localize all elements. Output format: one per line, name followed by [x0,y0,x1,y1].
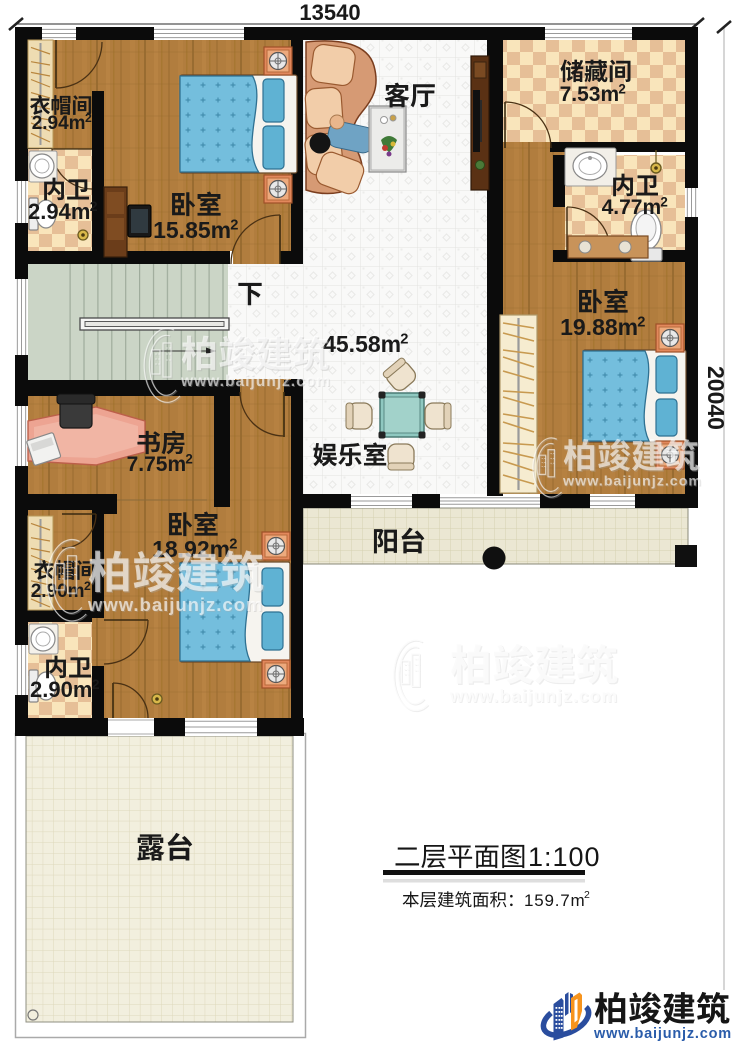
svg-text:www.baijunjz.com: www.baijunjz.com [562,474,702,490]
svg-text:2: 2 [229,537,237,553]
svg-text:2: 2 [660,194,667,209]
svg-text:4.77m: 4.77m [602,196,662,219]
svg-text:7.53m: 7.53m [560,83,620,106]
svg-text:2: 2 [584,889,590,901]
svg-text:2.94m: 2.94m [32,113,86,134]
svg-text:2: 2 [230,218,238,234]
svg-text:15.85m: 15.85m [153,217,231,243]
svg-text:www.baijunjz.com: www.baijunjz.com [87,594,263,615]
svg-text:7.75m: 7.75m [127,453,187,476]
svg-text:www.baijunjz.com: www.baijunjz.com [449,686,618,706]
svg-text:www.baijunjz.com: www.baijunjz.com [180,373,331,390]
svg-text:13540: 13540 [299,0,360,25]
svg-text:2: 2 [400,332,408,348]
svg-text:45.58m: 45.58m [323,331,401,357]
svg-text:www.baijunjz.com: www.baijunjz.com [593,1026,732,1042]
svg-text:2: 2 [90,198,98,214]
svg-text:2: 2 [85,111,92,125]
svg-text:2: 2 [185,451,192,466]
svg-text:20040: 20040 [703,366,729,430]
svg-text:2.94m: 2.94m [28,199,90,224]
svg-text:2: 2 [92,676,100,692]
svg-text:159.7m: 159.7m [524,891,586,910]
svg-text:1:100: 1:100 [528,842,601,872]
svg-text:2.90m: 2.90m [30,677,92,702]
svg-text:2: 2 [637,315,645,331]
svg-text:2: 2 [618,81,625,96]
svg-text:19.88m: 19.88m [560,314,638,340]
svg-text:2: 2 [84,579,91,593]
